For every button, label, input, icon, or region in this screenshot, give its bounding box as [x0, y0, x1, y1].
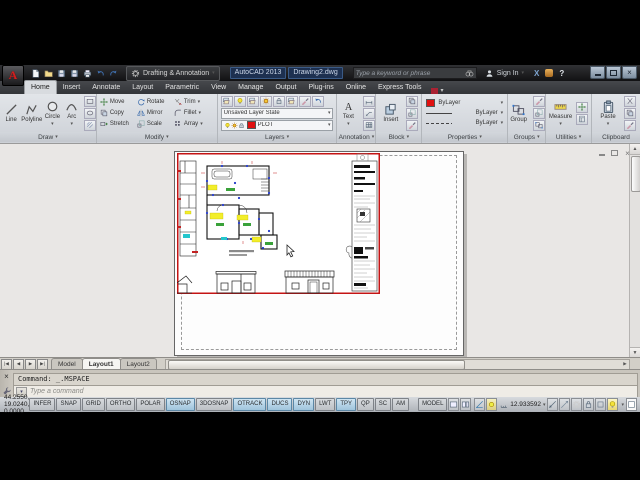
layer-dropdown[interactable]: PLOT ▾ [221, 120, 334, 131]
undo-icon[interactable] [95, 68, 105, 78]
panel-utilities: Measure▾ Utilities▾ [546, 94, 592, 143]
measure-button[interactable]: Measure▾ [549, 100, 572, 127]
chevron-down-icon: ▾ [347, 121, 350, 127]
app-title: AutoCAD 2013 [230, 67, 287, 79]
chevron-down-icon: ▾ [501, 100, 504, 106]
layer-match-icon[interactable] [299, 96, 311, 107]
make-current-icon[interactable] [286, 96, 298, 107]
quick-view-drawings-icon[interactable] [460, 398, 471, 411]
chevron-down-icon: ▾ [501, 120, 504, 126]
prev-tab-icon[interactable]: ◀ [13, 359, 24, 370]
workspace-switch-icon[interactable] [571, 398, 582, 411]
layer-properties-icon[interactable] [221, 96, 233, 107]
insert-button[interactable]: Insert [379, 103, 402, 123]
text-button[interactable]: Text▾ [337, 100, 359, 127]
drawing-area[interactable]: × ▲ ▼ [0, 143, 640, 358]
layer-lock-icon[interactable] [273, 96, 285, 107]
arc-button[interactable]: Arc▾ [63, 100, 81, 127]
mouse-cursor [286, 244, 296, 258]
lineweight-dropdown[interactable]: ByLayer ▾ [424, 108, 505, 118]
copy-clip-icon[interactable] [624, 108, 636, 119]
chevron-down-icon: ▾ [200, 121, 203, 127]
chevron-down-icon: ▾ [328, 122, 331, 128]
restore-icon [611, 150, 618, 156]
window-title: AutoCAD 2013 Drawing2.dwg [230, 67, 343, 79]
sign-in-label: Sign In [497, 70, 519, 77]
cut-icon[interactable] [624, 96, 636, 107]
tab-express-tools[interactable]: Express Tools [372, 81, 427, 94]
panel-clipboard-footer: Clipboard [592, 132, 640, 142]
horizontal-scrollbar[interactable]: ▶ [165, 359, 630, 370]
chevron-down-icon: ▾ [537, 134, 540, 140]
quick-view-layouts-icon[interactable] [448, 398, 459, 411]
chevron-down-icon: ▾ [372, 134, 375, 140]
title-block [352, 154, 377, 291]
toggle-ducs[interactable]: DUCS [267, 398, 292, 411]
layer-color-swatch [247, 121, 256, 129]
panel-draw: Line Polyline Circle▾ Arc▾ Draw▾ [0, 94, 97, 143]
quick-access-toolbar [30, 68, 118, 78]
tab-parametric[interactable]: Parametric [159, 81, 205, 94]
search-icon[interactable] [465, 69, 474, 78]
clean-screen-icon[interactable] [626, 398, 637, 411]
minimize-icon [599, 154, 605, 156]
panel-draw-footer[interactable]: Draw▾ [0, 132, 96, 142]
toggle-tpy[interactable]: TPY [336, 398, 356, 411]
toggle-qp[interactable]: QP [357, 398, 374, 411]
save-as-icon[interactable] [69, 68, 79, 78]
chevron-down-icon: ▾ [328, 110, 331, 116]
chevron-down-icon: ▾ [287, 134, 290, 140]
restore-icon [610, 70, 617, 76]
lineweight-sample [426, 113, 452, 114]
toggle-polar[interactable]: POLAR [136, 398, 164, 411]
group-edit-icon[interactable] [533, 108, 545, 119]
command-placeholder: Type a command [30, 388, 84, 395]
person-icon [485, 69, 494, 78]
model-paper-toggle[interactable]: MODEL [418, 398, 447, 411]
close-button[interactable]: × [622, 66, 637, 79]
layer-freeze-icon[interactable] [260, 96, 272, 107]
panel-modify-footer[interactable]: Modify▾ [97, 132, 217, 142]
drawing-window-controls: × [597, 149, 632, 157]
create-block-icon[interactable] [406, 96, 418, 107]
lock-icon [238, 122, 245, 129]
polyline-button[interactable]: Polyline [21, 103, 42, 123]
plot-icon[interactable] [82, 68, 92, 78]
fillet-button[interactable]: Fillet▾ [174, 108, 214, 119]
status-bar: 44.2550, 19.0240, 0.0000 INFER SNAP GRID… [0, 397, 640, 412]
exchange-apps-icon[interactable]: X [534, 69, 539, 78]
linetype-sample [426, 123, 452, 124]
ribbon-display-toggle[interactable]: ▾ [431, 87, 443, 94]
minimize-icon [595, 74, 601, 76]
match-properties-icon[interactable] [624, 120, 636, 131]
hatch-tool-icon[interactable] [84, 120, 96, 131]
chevron-down-icon: ▾ [51, 121, 54, 127]
copy-button[interactable]: Copy [100, 108, 137, 119]
toggle-otrack[interactable]: OTRACK [233, 398, 266, 411]
chevron-down-icon: ▾ [579, 134, 582, 140]
new-icon[interactable] [30, 68, 40, 78]
tab-online[interactable]: Online [340, 81, 372, 94]
autoadd-scales-icon[interactable] [559, 398, 570, 411]
drawing-restore-button[interactable] [610, 149, 619, 157]
toggle-osnap[interactable]: OSNAP [166, 398, 195, 411]
stretch-button[interactable]: Stretch [100, 119, 137, 130]
ellipse-tool-icon[interactable] [84, 108, 96, 119]
gear-icon [131, 69, 140, 78]
panel-properties-footer[interactable]: Properties▾ [422, 132, 507, 142]
communication-center-icon[interactable] [545, 69, 553, 77]
tab-output[interactable]: Output [269, 81, 302, 94]
close-icon[interactable]: × [4, 373, 9, 381]
drawing-minimize-button[interactable] [597, 149, 606, 157]
toggle-am[interactable]: AM [392, 398, 409, 411]
restore-button[interactable] [606, 66, 621, 79]
toggle-lwt[interactable]: LWT [315, 398, 335, 411]
panel-groups: Group Groups▾ [508, 94, 546, 143]
chevron-down-icon: ▾ [479, 134, 482, 140]
minimize-button[interactable] [590, 66, 605, 79]
chevron-down-icon: ▾ [607, 121, 610, 127]
line-button[interactable]: Line [2, 103, 20, 123]
layer-isolate-icon[interactable] [247, 96, 259, 107]
block-attributes-icon[interactable] [406, 120, 418, 131]
search-placeholder: Type a keyword or phrase [356, 70, 465, 77]
dimension-tool-icon[interactable] [363, 96, 375, 107]
save-icon[interactable] [56, 68, 66, 78]
chevron-down-icon: ▾ [70, 121, 73, 127]
panel-utilities-footer[interactable]: Utilities▾ [546, 132, 591, 142]
paste-button[interactable]: Paste▾ [597, 100, 620, 127]
chevron-down-icon: ▾ [166, 134, 169, 140]
tab-manage[interactable]: Manage [232, 81, 269, 94]
vertical-scrollbar[interactable]: ▲ ▼ [629, 144, 640, 358]
tab-plugins[interactable]: Plug-ins [302, 81, 339, 94]
bulb-icon [224, 122, 231, 129]
color-swatch [426, 99, 435, 107]
toggle-grid[interactable]: GRID [82, 398, 105, 411]
chevron-down-icon: ▾ [407, 134, 410, 140]
sign-in-button[interactable]: Sign In ▾ [485, 69, 524, 78]
last-tab-icon[interactable]: ▶| [37, 359, 48, 370]
toggle-snap[interactable]: SNAP [56, 398, 80, 411]
chevron-down-icon: ▾ [199, 110, 202, 116]
toggle-infer[interactable]: INFER [29, 398, 55, 411]
toggle-dyn[interactable]: DYN [293, 398, 314, 411]
panel-clipboard: Paste▾ Clipboard [592, 94, 640, 143]
trim-button[interactable]: Trim▾ [174, 97, 214, 108]
annotation-scale-icon[interactable] [474, 398, 485, 411]
tab-layout[interactable]: Layout [126, 81, 159, 94]
panel-groups-footer[interactable]: Groups▾ [508, 132, 545, 142]
document-title: Drawing2.dwg [288, 67, 342, 79]
tab-annotate[interactable]: Annotate [86, 81, 126, 94]
vertical-scroll-thumb[interactable] [631, 156, 640, 192]
layout-viewport-floorplan[interactable] [177, 153, 380, 294]
scale-icon [500, 401, 508, 409]
redo-icon[interactable] [108, 68, 118, 78]
annotation-visibility-icon[interactable] [547, 398, 558, 411]
toggle-sc[interactable]: SC [375, 398, 391, 411]
command-line-window: × Command: _.MSPACE ▾ Type a command [0, 369, 640, 398]
layer-off-icon[interactable] [234, 96, 246, 107]
workspace-switcher[interactable]: Drafting & Annotation ▾ [126, 66, 220, 81]
display-lock-icon[interactable] [583, 398, 594, 411]
quick-calc-icon[interactable] [576, 114, 588, 125]
isolate-objects-icon[interactable] [595, 398, 606, 411]
viewport-scale-control[interactable]: 12.933592 ▾ [500, 401, 545, 409]
edit-block-icon[interactable] [406, 108, 418, 119]
toggle-3dosnap[interactable]: 3DOSNAP [196, 398, 233, 411]
rotate-button[interactable]: Rotate [137, 97, 174, 108]
table-tool-icon[interactable] [363, 120, 375, 131]
id-point-icon[interactable] [576, 102, 588, 113]
tab-view[interactable]: View [205, 81, 232, 94]
window-controls: × [590, 66, 637, 79]
open-icon[interactable] [43, 68, 53, 78]
circle-button[interactable]: Circle▾ [43, 100, 61, 127]
panel-annotation: Text▾ Annotation▾ [337, 94, 376, 143]
screen: A Drafting & Annotation ▾ AutoCAD 2013 D… [0, 0, 640, 480]
workspace-label: Drafting & Annotation [143, 70, 209, 77]
title-bar: A Drafting & Annotation ▾ AutoCAD 2013 D… [0, 65, 640, 81]
next-tab-icon[interactable]: ▶ [25, 359, 36, 370]
first-tab-icon[interactable]: |◀ [1, 359, 12, 370]
autocad-logo-icon: A [9, 68, 18, 83]
chevron-down-icon: ▾ [501, 110, 504, 116]
panel-layers-footer[interactable]: Layers▾ [218, 132, 337, 142]
close-icon: × [627, 69, 632, 77]
help-icon[interactable]: ? [559, 69, 564, 78]
layer-prev-icon[interactable] [312, 96, 324, 107]
panel-layers: Unsaved Layer State ▾ PLOT ▾ Layers▾ [218, 94, 338, 143]
linetype-dropdown[interactable]: ByLayer ▾ [424, 118, 505, 128]
move-button[interactable]: Move [100, 97, 137, 108]
hardware-acceleration-icon[interactable] [607, 398, 618, 411]
infocenter-icons: X ? [534, 69, 564, 78]
chevron-down-icon: ▾ [543, 402, 546, 408]
rectangle-tool-icon[interactable] [84, 96, 96, 107]
chevron-down-icon: ▾ [198, 99, 201, 105]
autoscale-icon[interactable] [486, 398, 497, 411]
chevron-down-icon: ▾ [212, 70, 215, 76]
coordinates-readout: 44.2550, 19.0240, 0.0000 [4, 394, 29, 415]
chevron-down-icon: ▾ [559, 121, 562, 127]
array-button[interactable]: Array▾ [174, 119, 214, 130]
object-color-dropdown[interactable]: ByLayer ▾ [424, 98, 505, 108]
chevron-down-icon: ▾ [55, 134, 58, 140]
mirror-button[interactable]: Mirror [137, 108, 174, 119]
status-menu-icon[interactable]: ▾ [621, 402, 624, 408]
viewport-scale-value: 12.933592 [510, 401, 541, 408]
panel-annotation-footer[interactable]: Annotation▾ [337, 132, 375, 142]
leader-tool-icon[interactable] [363, 108, 375, 119]
ribbon-tab-bar: Home Insert Annotate Layout Parametric V… [0, 81, 640, 94]
group-button[interactable]: Group [508, 103, 529, 123]
help-search-input[interactable]: Type a keyword or phrase [353, 67, 477, 79]
panel-properties: ByLayer ▾ ByLayer ▾ ByLayer ▾ Properties… [422, 94, 508, 143]
tab-home[interactable]: Home [24, 80, 57, 94]
scroll-right-icon[interactable]: ▶ [621, 360, 629, 368]
chevron-down-icon: ▾ [522, 70, 525, 76]
scroll-up-icon[interactable]: ▲ [630, 144, 640, 155]
panel-block-footer[interactable]: Block▾ [376, 132, 421, 142]
horizontal-scroll-thumb[interactable] [168, 360, 465, 370]
scale-button[interactable]: Scale [137, 119, 174, 130]
application-menu-button[interactable]: A [2, 65, 24, 86]
layer-state-dropdown[interactable]: Unsaved Layer State ▾ [221, 108, 334, 119]
ribbon: Line Polyline Circle▾ Arc▾ Draw▾ Move Ro… [0, 94, 640, 143]
toggle-ortho[interactable]: ORTHO [106, 398, 136, 411]
ungroup-icon[interactable] [533, 96, 545, 107]
panel-modify: Move Rotate Trim▾ Copy Mirror Fillet▾ St… [97, 94, 218, 143]
panel-block: Insert Block▾ [376, 94, 422, 143]
tab-insert[interactable]: Insert [57, 81, 87, 94]
group-selection-icon[interactable] [533, 120, 545, 131]
sun-icon [231, 122, 238, 129]
